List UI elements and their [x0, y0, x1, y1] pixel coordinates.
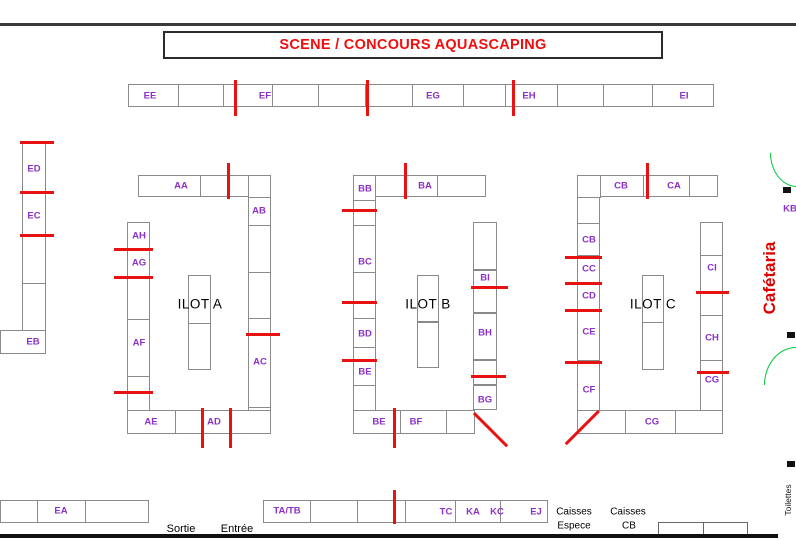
booth-cell — [200, 175, 249, 197]
red-marker — [342, 209, 377, 212]
booth-label-cb-top: CB — [614, 181, 628, 192]
toilettes-label: Toilettes — [783, 484, 793, 515]
booth-cell — [127, 277, 150, 320]
booth-label-ad: AD — [207, 417, 221, 428]
booth-cell — [357, 500, 406, 523]
booth-cell — [463, 84, 506, 107]
red-marker — [201, 408, 204, 448]
booth-cell — [473, 360, 497, 385]
red-marker — [696, 291, 729, 294]
wall-stub — [787, 332, 795, 338]
booth-label-cg: CG — [705, 375, 719, 386]
door-arc-icon — [770, 153, 796, 187]
caisses-espece-label-line2: Espece — [557, 521, 590, 532]
red-marker — [20, 234, 54, 237]
ilot-c-name: ILOT C — [630, 297, 676, 312]
red-marker — [114, 248, 153, 251]
booth-cell — [365, 84, 413, 107]
caisses-cb-label-line1: Caisses — [610, 507, 646, 518]
booth-label-bh: BH — [478, 328, 492, 339]
caisses-espece-label-line1: Caisses — [556, 507, 592, 518]
red-marker — [471, 286, 508, 289]
booth-label-bb: BB — [358, 184, 372, 195]
booth-cell — [603, 84, 653, 107]
red-diagonal-marker — [473, 412, 508, 447]
scene-title: SCENE / CONCOURS AQUASCAPING — [279, 37, 546, 53]
entree-label: Entrée — [221, 523, 253, 535]
booth-label-ee: EE — [144, 91, 157, 102]
booth-label-aa: AA — [174, 181, 188, 192]
booth-cell — [700, 292, 723, 316]
booth-label-be2: BE — [372, 417, 385, 428]
booth-cell — [557, 84, 604, 107]
booth-label-ce: CE — [582, 327, 595, 338]
booth-cell — [248, 225, 271, 273]
sortie-label: Sortie — [167, 523, 196, 535]
red-marker — [342, 359, 377, 362]
ilot-c-table — [642, 322, 664, 370]
red-marker — [646, 163, 649, 199]
ilot-a-table — [188, 323, 211, 370]
booth-cell — [437, 175, 486, 197]
bottom-wall — [0, 534, 778, 538]
booth-cell-ci — [700, 255, 723, 293]
booth-cell — [446, 410, 475, 434]
red-marker — [227, 163, 230, 199]
booth-cell — [0, 500, 38, 523]
booth-label-kc: KC — [490, 507, 504, 518]
booth-label-ah: AH — [132, 231, 146, 242]
booth-label-ca: CA — [667, 181, 681, 192]
cafetaria-label: Cafétaria — [760, 242, 780, 315]
booth-cell — [178, 84, 224, 107]
booth-cell — [353, 200, 376, 226]
booth-label-ea: EA — [54, 506, 67, 517]
red-marker — [234, 80, 237, 116]
booth-label-ba: BA — [418, 181, 432, 192]
ilot-b-name: ILOT B — [405, 297, 451, 312]
booth-cell — [675, 410, 723, 434]
booth-cell — [353, 385, 376, 411]
red-marker — [512, 80, 515, 116]
booth-label-tc: TC — [440, 507, 453, 518]
red-marker — [342, 301, 377, 304]
booth-cell — [85, 500, 149, 523]
red-marker — [565, 309, 602, 312]
booth-label-eg: EG — [426, 91, 440, 102]
booth-label-ei: EI — [680, 91, 689, 102]
red-marker — [393, 490, 396, 524]
booth-label-ci: CI — [707, 263, 717, 274]
booth-label-tatb: TA/TB — [273, 506, 300, 517]
booth-label-ed: ED — [27, 164, 40, 175]
booth-cell — [248, 175, 271, 198]
booth-label-ka: KA — [466, 507, 480, 518]
booth-cell — [22, 235, 46, 284]
booth-cell — [700, 222, 723, 256]
red-marker — [229, 408, 232, 448]
ilot-a-name: ILOT A — [178, 297, 223, 312]
booth-cell-aa — [138, 175, 201, 197]
booth-label-cf: CF — [583, 385, 596, 396]
booth-label-ec: EC — [27, 211, 40, 222]
booth-label-ac: AC — [253, 357, 267, 368]
booth-label-cb: CB — [582, 235, 596, 246]
booth-label-bg: BG — [478, 395, 492, 406]
booth-label-ag: AG — [132, 258, 146, 269]
booth-cell — [577, 175, 601, 198]
booth-label-ej: EJ — [530, 507, 542, 518]
door-arc-icon — [764, 347, 796, 385]
wall-stub — [783, 187, 791, 193]
red-marker — [246, 333, 280, 336]
booth-cell — [689, 175, 718, 197]
red-marker — [565, 282, 602, 285]
booth-cell — [577, 197, 600, 224]
booth-cell-bf — [400, 410, 447, 434]
red-marker — [20, 191, 54, 194]
wall-stub — [787, 461, 795, 467]
booth-label-eh: EH — [522, 91, 535, 102]
booth-cell — [473, 222, 497, 270]
booth-cell — [230, 410, 271, 434]
red-marker — [471, 375, 506, 378]
booth-label-ae: AE — [144, 417, 157, 428]
red-marker — [114, 391, 153, 394]
booth-label-cd: CD — [582, 291, 596, 302]
booth-label-bi: BI — [480, 273, 490, 284]
booth-cell — [318, 84, 366, 107]
red-marker — [565, 361, 602, 364]
booth-label-bc: BC — [358, 257, 372, 268]
red-marker — [393, 408, 396, 448]
booth-label-cg2: CG — [645, 417, 659, 428]
booth-label-ef: EF — [259, 91, 271, 102]
booth-label-be: BE — [358, 367, 371, 378]
booth-label-af: AF — [133, 338, 146, 349]
caisses-cb-label-line2: CB — [622, 521, 636, 532]
red-marker — [565, 256, 602, 259]
booth-label-bf: BF — [410, 417, 423, 428]
scene-title-box: SCENE / CONCOURS AQUASCAPING — [163, 31, 663, 59]
ilot-b-table — [417, 322, 439, 368]
floorplan-canvas: SCENE / CONCOURS AQUASCAPING EE EF EG EH… — [0, 0, 796, 540]
booth-label-eb: EB — [26, 337, 39, 348]
booth-cell — [310, 500, 358, 523]
booth-label-ch: CH — [705, 333, 719, 344]
booth-label-cc: CC — [582, 264, 596, 275]
red-marker — [404, 163, 407, 199]
booth-cell — [248, 272, 271, 319]
booth-cell — [353, 272, 376, 319]
booth-label-ab: AB — [252, 206, 266, 217]
red-marker — [366, 80, 369, 116]
booth-cell — [22, 283, 46, 331]
red-marker — [114, 276, 153, 279]
booth-cell — [272, 84, 319, 107]
red-marker — [20, 141, 54, 144]
top-wall — [0, 23, 796, 26]
booth-label-bd: BD — [358, 329, 372, 340]
booth-label-kb: KB — [783, 204, 796, 215]
